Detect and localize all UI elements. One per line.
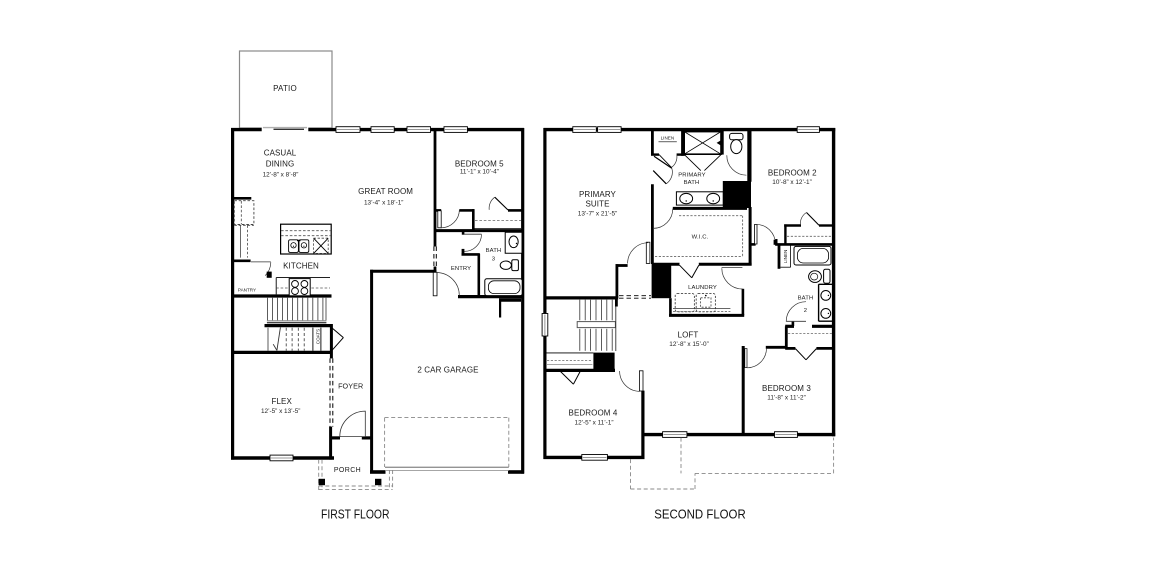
svg-text:FIRST FLOOR: FIRST FLOOR <box>321 507 390 521</box>
svg-text:BATH: BATH <box>798 296 814 302</box>
svg-text:BEDROOM 3: BEDROOM 3 <box>762 384 811 393</box>
svg-text:FLEX: FLEX <box>271 397 292 406</box>
svg-text:COATS: COATS <box>315 329 320 344</box>
svg-text:SUITE: SUITE <box>585 200 609 209</box>
svg-text:LOFT: LOFT <box>678 331 699 340</box>
svg-text:PORCH: PORCH <box>334 467 361 474</box>
svg-text:PRIMARY: PRIMARY <box>579 190 617 199</box>
svg-text:12’-5” x 13’-5”: 12’-5” x 13’-5” <box>261 408 300 415</box>
svg-text:PRIMARY: PRIMARY <box>678 173 705 179</box>
svg-text:11’-1” x 10’-4”: 11’-1” x 10’-4” <box>460 168 499 175</box>
svg-text:DINING: DINING <box>266 159 295 168</box>
svg-text:FOYER: FOYER <box>338 381 363 390</box>
svg-text:PANTRY: PANTRY <box>238 288 256 293</box>
svg-text:ENTRY: ENTRY <box>451 266 471 272</box>
svg-text:SECOND FLOOR: SECOND FLOOR <box>654 507 745 521</box>
svg-text:12’-8” x 15’-0”: 12’-8” x 15’-0” <box>669 341 708 348</box>
svg-text:2 CAR GARAGE: 2 CAR GARAGE <box>417 365 478 374</box>
svg-text:13’-7” x 21’-5”: 13’-7” x 21’-5” <box>578 211 617 218</box>
svg-text:LINEN: LINEN <box>783 250 788 264</box>
svg-text:BATH: BATH <box>486 248 502 254</box>
svg-text:2: 2 <box>804 308 807 314</box>
svg-text:11’-8” x 11’-2”: 11’-8” x 11’-2” <box>767 394 805 401</box>
svg-text:13’-4” x 18’-1”: 13’-4” x 18’-1” <box>364 200 403 207</box>
svg-text:BEDROOM 2: BEDROOM 2 <box>768 168 817 177</box>
svg-text:PATIO: PATIO <box>273 84 297 93</box>
svg-text:BEDROOM 4: BEDROOM 4 <box>569 409 618 418</box>
svg-text:12’-5” x 11’-1”: 12’-5” x 11’-1” <box>575 419 614 426</box>
svg-text:LAUNDRY: LAUNDRY <box>688 285 717 291</box>
svg-text:LINEN: LINEN <box>661 135 675 140</box>
svg-text:BATH: BATH <box>684 180 700 186</box>
svg-text:12’-8” x 8’-8”: 12’-8” x 8’-8” <box>263 171 299 178</box>
svg-text:10’-8” x 12’-1”: 10’-8” x 12’-1” <box>772 179 811 186</box>
svg-text:CASUAL: CASUAL <box>264 148 297 157</box>
svg-text:W.I.C.: W.I.C. <box>692 235 709 241</box>
svg-text:KITCHEN: KITCHEN <box>283 261 319 270</box>
svg-text:BEDROOM 5: BEDROOM 5 <box>455 159 504 168</box>
svg-text:GREAT ROOM: GREAT ROOM <box>358 187 413 196</box>
